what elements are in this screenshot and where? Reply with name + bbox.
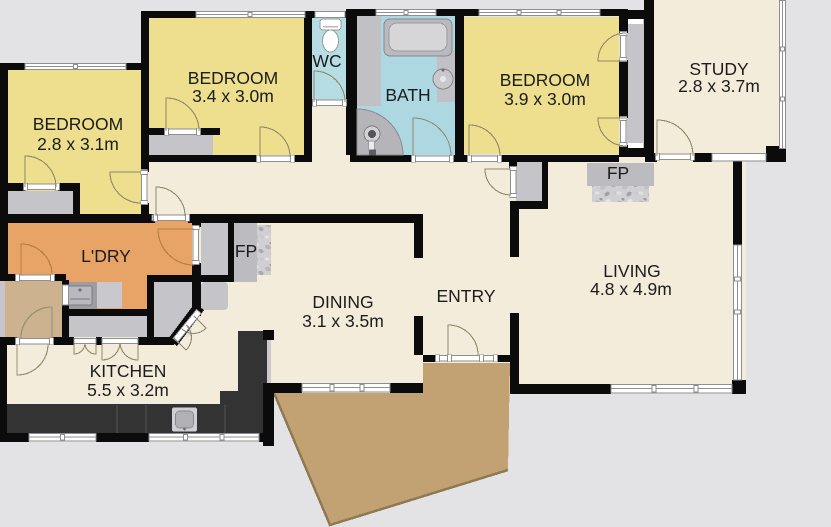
svg-text:2.8 x 3.7m: 2.8 x 3.7m	[678, 76, 760, 96]
svg-text:4.8 x 4.9m: 4.8 x 4.9m	[590, 279, 672, 299]
svg-text:BEDROOM: BEDROOM	[188, 68, 278, 88]
svg-text:KITCHEN: KITCHEN	[90, 361, 167, 381]
svg-text:BATH: BATH	[385, 85, 430, 105]
svg-text:5.5 x 3.2m: 5.5 x 3.2m	[87, 380, 169, 400]
svg-text:ENTRY: ENTRY	[437, 286, 496, 306]
svg-text:FP: FP	[607, 163, 629, 183]
svg-text:3.1 x 3.5m: 3.1 x 3.5m	[302, 311, 384, 331]
svg-text:2.8 x 3.1m: 2.8 x 3.1m	[37, 134, 119, 154]
svg-text:DINING: DINING	[312, 292, 373, 312]
svg-text:BEDROOM: BEDROOM	[33, 114, 123, 134]
svg-text:WC: WC	[312, 51, 341, 71]
svg-text:LIVING: LIVING	[603, 261, 660, 281]
svg-text:BEDROOM: BEDROOM	[500, 70, 590, 90]
svg-text:3.9 x 3.0m: 3.9 x 3.0m	[504, 89, 586, 109]
svg-text:L'DRY: L'DRY	[81, 246, 131, 266]
svg-text:FP: FP	[235, 241, 257, 261]
svg-text:3.4 x 3.0m: 3.4 x 3.0m	[192, 86, 274, 106]
